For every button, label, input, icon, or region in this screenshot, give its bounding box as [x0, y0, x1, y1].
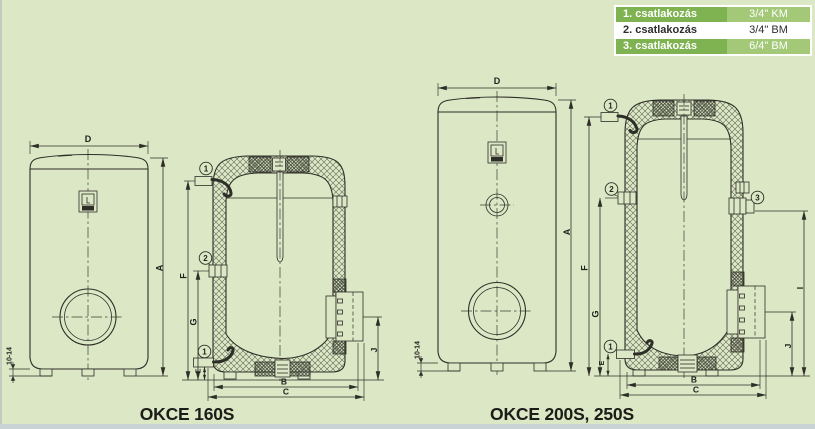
- dim-D-left: D: [30, 134, 148, 154]
- title-right: OKCE 200S, 250S: [490, 404, 634, 424]
- callout-2-right: 2: [609, 185, 614, 194]
- callout-1-top-left: 1: [204, 164, 209, 173]
- dim-J-right: J: [765, 312, 796, 376]
- dim-label-e-left: E: [196, 368, 203, 373]
- table-row: 2. csatlakozás 3/4" BM: [616, 23, 810, 38]
- anode-mount-left: [249, 157, 309, 172]
- thermostat-panel-right: [488, 142, 506, 163]
- connection-value: 6/4" BM: [727, 39, 810, 54]
- connection-value: 3/4" BM: [727, 23, 810, 38]
- dim-A-right: A: [546, 100, 576, 371]
- cross-section-right: 1 2 3 1: [580, 94, 811, 399]
- dim-E-left: E: [196, 367, 205, 380]
- connection-label: 2. csatlakozás: [616, 23, 727, 38]
- callout-2-left: 2: [203, 254, 208, 263]
- dim-label-j-left: J: [369, 347, 379, 352]
- callout-1-bottom-left: 1: [202, 347, 207, 356]
- dim-label-feet-right: 10-14: [415, 341, 422, 359]
- dim-label-g-right: G: [591, 310, 601, 317]
- connection-value: 3/4" KM: [727, 7, 810, 22]
- dim-label-e-right: E: [599, 360, 606, 365]
- page-edge-bottom: [0, 424, 815, 429]
- page-edge-left: [0, 0, 2, 429]
- heating-flange-right: [659, 355, 716, 372]
- dim-label-j-right: J: [783, 343, 793, 348]
- dim-label-b-left: B: [281, 377, 287, 387]
- connection-label: 1. csatlakozás: [616, 7, 727, 22]
- dim-A-left: A: [136, 158, 168, 376]
- dim-label-a-right: A: [562, 228, 572, 235]
- table-row: 1. csatlakozás 3/4" KM: [616, 7, 810, 22]
- front-view-right: D A 10-14: [415, 76, 577, 378]
- dim-feet-left: 10-14: [7, 347, 53, 383]
- sensor-pocket-left: [333, 196, 347, 207]
- callout-1-bottom-right: 1: [608, 342, 613, 351]
- dim-label-i-right: I: [795, 287, 805, 289]
- dim-F-left: F: [179, 181, 189, 380]
- dim-label-f-left: F: [179, 273, 189, 279]
- technical-drawing: D A 10-14: [0, 0, 815, 429]
- callout-3-right: 3: [755, 193, 760, 202]
- dim-label-d-right: D: [494, 76, 501, 86]
- title-left: OKCE 160S: [140, 404, 235, 424]
- dim-label-g-left: G: [189, 318, 199, 325]
- dim-label-f-right: F: [580, 265, 590, 271]
- dim-feet-right: 10-14: [415, 341, 461, 378]
- dim-F-right: F: [580, 117, 590, 376]
- dim-label-c-left: C: [283, 387, 289, 397]
- thermostat-panel-left: [79, 191, 97, 212]
- dim-label-a-left: A: [155, 264, 165, 271]
- sensor-pocket-right: [736, 182, 749, 193]
- callout-1-top-right: 1: [608, 101, 613, 110]
- dim-label-feet-left: 10-14: [7, 347, 14, 365]
- dim-label-b-right: B: [691, 375, 697, 385]
- connections-table: 1. csatlakozás 3/4" KM 2. csatlakozás 3/…: [614, 5, 812, 56]
- cross-section-left: 1 2 1: [179, 150, 385, 401]
- dim-J-left: J: [363, 317, 382, 380]
- page: D A 10-14: [0, 0, 815, 429]
- electric-box-right: [727, 272, 765, 352]
- heating-flange-left: [255, 360, 310, 377]
- table-row: 3. csatlakozás 6/4" BM: [616, 39, 810, 54]
- front-view-left: D A 10-14: [7, 134, 169, 383]
- dim-label-c-right: C: [693, 385, 699, 395]
- dim-label-d-left: D: [85, 134, 92, 144]
- connection-label: 3. csatlakozás: [616, 39, 727, 54]
